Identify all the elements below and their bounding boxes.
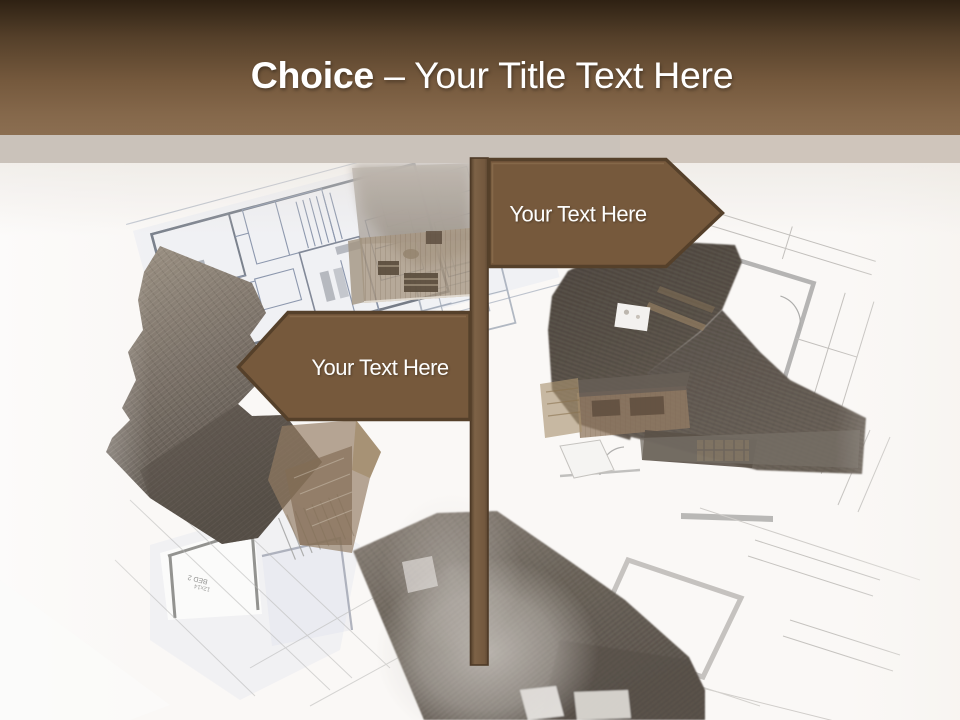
svg-text:Your Text Here: Your Text Here	[311, 355, 449, 380]
svg-text:Your Text Here: Your Text Here	[509, 202, 647, 227]
svg-text:Choice – Your Title Text Here: Choice – Your Title Text Here	[251, 54, 734, 96]
